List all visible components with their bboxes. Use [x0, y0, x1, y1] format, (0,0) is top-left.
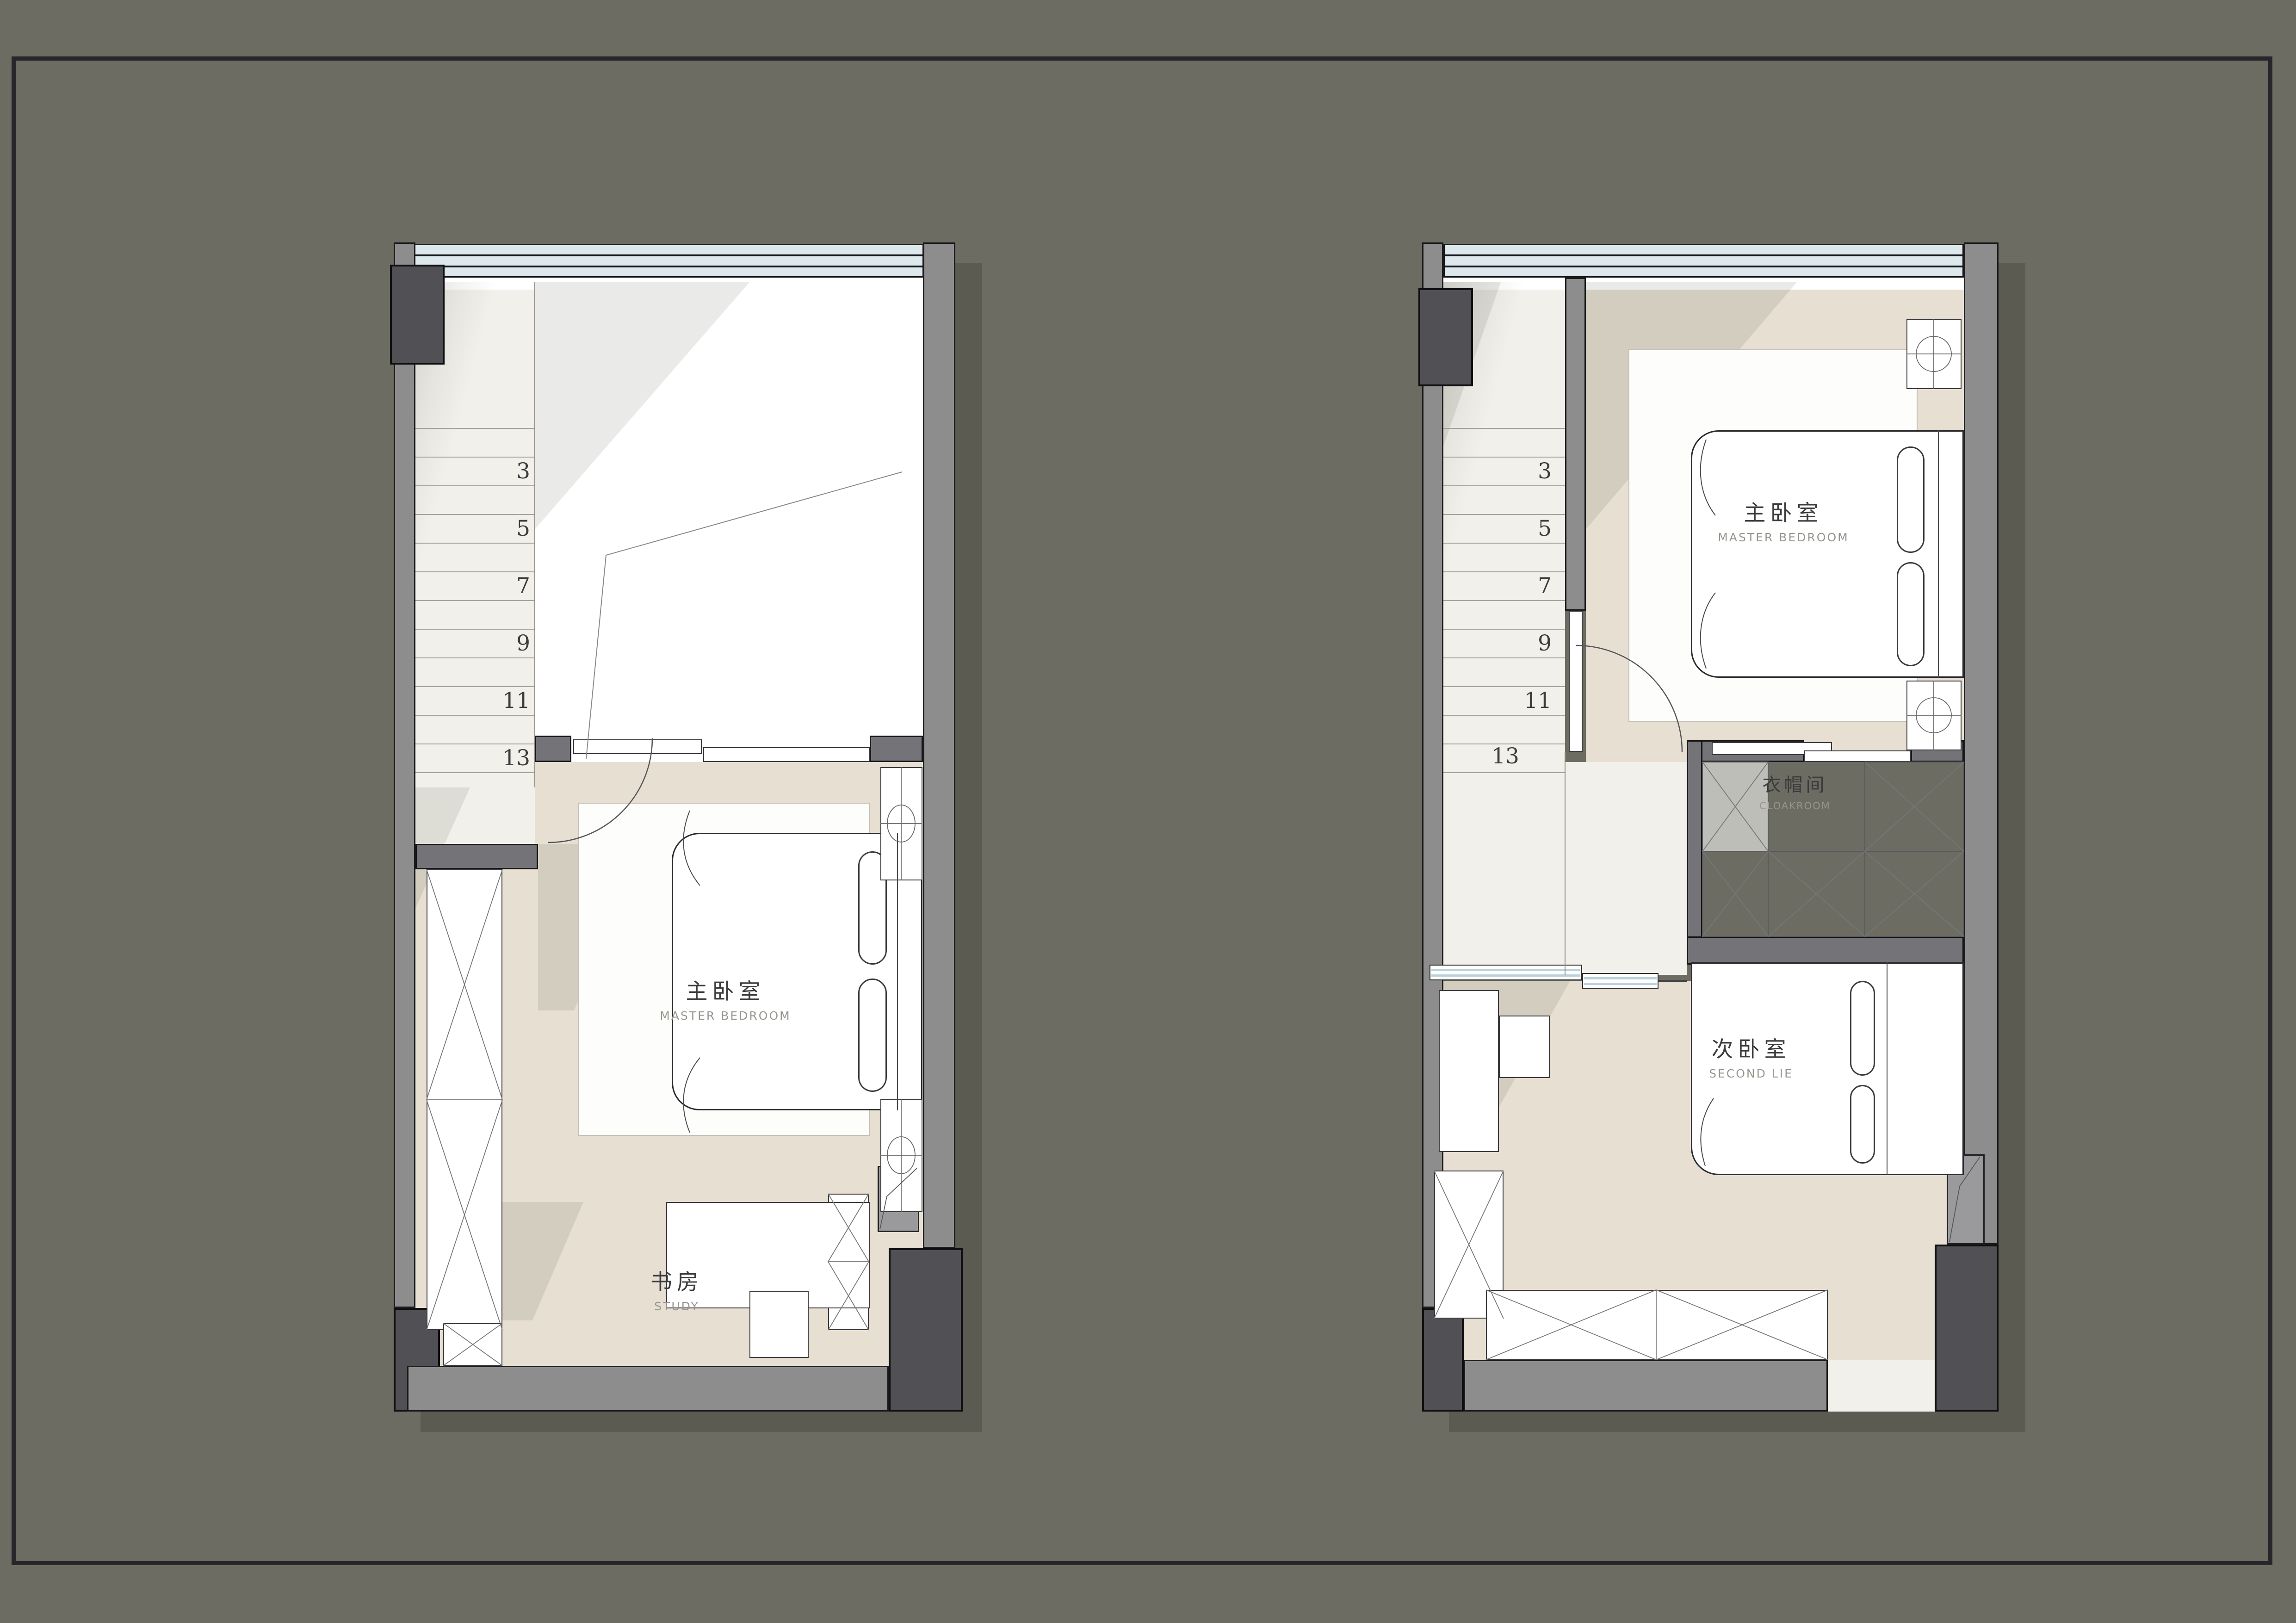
floor-plan-right: 3 5 7 9 11 13 主卧室 MASTER BEDROOM 衣帽间 CLO… — [1422, 242, 1999, 1412]
nightstand — [880, 767, 922, 880]
column-top-left — [390, 265, 445, 365]
partition-connector — [1659, 980, 1687, 982]
stair-number: 5 — [475, 514, 530, 544]
chair — [1499, 1016, 1550, 1078]
wall-bottom — [407, 1366, 889, 1412]
room-label-cn: 主卧室 — [642, 973, 809, 1005]
room-label-en: CLOAKROOM — [1726, 800, 1864, 811]
stair-number: 9 — [1496, 629, 1552, 658]
room-label-cloakroom: 衣帽间 CLOAKROOM — [1726, 770, 1864, 811]
wall-right — [1964, 242, 1999, 1245]
stair-number: 3 — [1496, 457, 1552, 486]
wall-right — [923, 242, 955, 1248]
room-label-master-bedroom: 主卧室 MASTER BEDROOM — [642, 973, 809, 1022]
room-label-cn: 衣帽间 — [1726, 770, 1864, 797]
stair-number: 11 — [1496, 686, 1552, 716]
stair-number: 5 — [1496, 514, 1552, 544]
room-label-en: MASTER BEDROOM — [1700, 531, 1867, 544]
column-bottom-right — [889, 1248, 963, 1412]
room-label-en: STUDY — [594, 1300, 760, 1313]
sliding-door-leaf — [1569, 611, 1583, 752]
wall-mid-right — [870, 736, 923, 762]
room-label-study: 书房 STUDY — [594, 1264, 760, 1313]
column-bottom-left — [1422, 1308, 1464, 1412]
stair-number: 7 — [1496, 571, 1552, 601]
room-label-en: SECOND LIE — [1668, 1067, 1834, 1080]
wardrobe-left — [427, 869, 502, 1330]
glass-partition — [1430, 965, 1582, 980]
column-bottom-right — [1935, 1245, 1999, 1412]
stair-number: 11 — [475, 686, 530, 716]
glazing-line — [1431, 969, 1580, 971]
sliding-door-leaf — [573, 739, 702, 754]
sliding-door-leaf — [703, 747, 870, 762]
wall-cloakroom-left — [1687, 740, 1702, 965]
wall-cloakroom-bottom — [1687, 936, 1964, 965]
cabinet-small — [443, 1323, 502, 1366]
wall-mid-left — [535, 736, 571, 762]
nightstand — [1906, 319, 1962, 389]
stair-number: 13 — [475, 743, 530, 773]
wall-stair-partition — [1565, 278, 1586, 611]
wall-stair-stub — [415, 844, 538, 869]
sliding-door-track — [1804, 750, 1911, 762]
desk — [1439, 990, 1499, 1152]
stair-landing-number: 13 — [1478, 742, 1533, 771]
floor-plan-left: 3 5 7 9 11 13 主卧室 MASTER BEDROOM 书房 STUD… — [394, 242, 955, 1412]
landing-lower-floor — [1565, 762, 1687, 975]
wall-bottom — [1464, 1360, 1828, 1412]
nightstand — [1906, 681, 1962, 750]
pillow — [1850, 1085, 1875, 1164]
glazing-line — [415, 266, 922, 267]
cabinet-bottom — [1486, 1290, 1828, 1360]
stair-number: 9 — [475, 629, 530, 658]
pillow — [1850, 981, 1875, 1076]
pillow — [1897, 562, 1925, 666]
glazing-line — [1584, 977, 1657, 979]
void-area — [535, 278, 923, 762]
stair-number: 3 — [475, 457, 530, 486]
room-label-second-bedroom: 次卧室 SECOND LIE — [1668, 1031, 1834, 1080]
room-label-en: MASTER BEDROOM — [642, 1009, 809, 1022]
column-top-left — [1418, 288, 1473, 386]
glazing-line — [1445, 254, 1962, 256]
pillow — [1897, 446, 1925, 553]
room-label-master-bedroom: 主卧室 MASTER BEDROOM — [1700, 495, 1867, 544]
background: { "colors": { "background": "#6c6c62", "… — [0, 0, 2296, 1623]
glazing-line — [1445, 266, 1962, 267]
glazing-line — [1584, 983, 1657, 985]
glass-partition — [1582, 973, 1659, 989]
glazing-line — [415, 254, 922, 256]
bottom-gap-floor — [1828, 1360, 1935, 1412]
nightstand — [880, 1099, 922, 1212]
room-label-cn: 书房 — [594, 1264, 760, 1296]
wall-left — [394, 242, 415, 1308]
stair-number: 7 — [475, 571, 530, 601]
window-strip — [413, 244, 924, 278]
window-strip — [1443, 244, 1964, 278]
room-label-cn: 次卧室 — [1668, 1031, 1834, 1063]
pillow — [858, 979, 887, 1092]
glazing-line — [1431, 974, 1580, 977]
room-label-cn: 主卧室 — [1700, 495, 1867, 527]
